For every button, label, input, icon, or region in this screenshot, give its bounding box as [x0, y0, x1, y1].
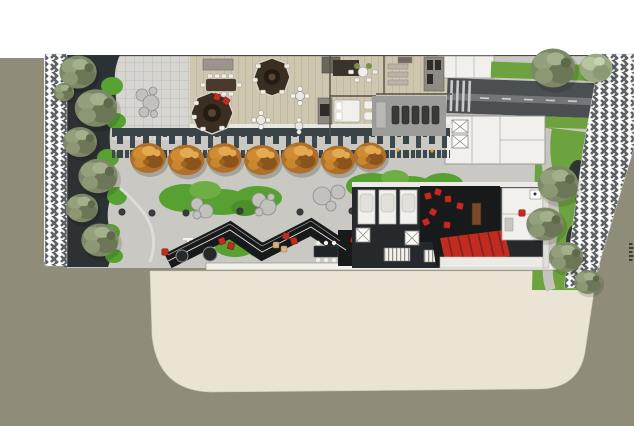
fitness-room — [372, 96, 446, 136]
canopy-dining-set — [314, 241, 338, 262]
outdoor-rug — [203, 59, 233, 70]
fire-lounge-octagon-b — [252, 58, 290, 96]
core-x-1 — [356, 228, 370, 242]
upper-roofs — [438, 56, 494, 78]
mid-right-building — [445, 116, 545, 164]
washroom-stalls — [358, 190, 417, 224]
boulder-cluster-lawn2 — [252, 193, 276, 216]
fire-lounge-octagon-a — [191, 92, 233, 134]
south-white-canopy — [440, 257, 545, 268]
south-building — [352, 182, 549, 268]
site-plan-canvas — [0, 0, 634, 426]
equipment-column — [424, 57, 444, 91]
sand-parcel — [150, 271, 597, 392]
stair-run-1 — [384, 248, 410, 261]
core-x-2 — [405, 231, 419, 245]
terrace-table — [472, 203, 481, 225]
treadmills — [392, 106, 439, 124]
